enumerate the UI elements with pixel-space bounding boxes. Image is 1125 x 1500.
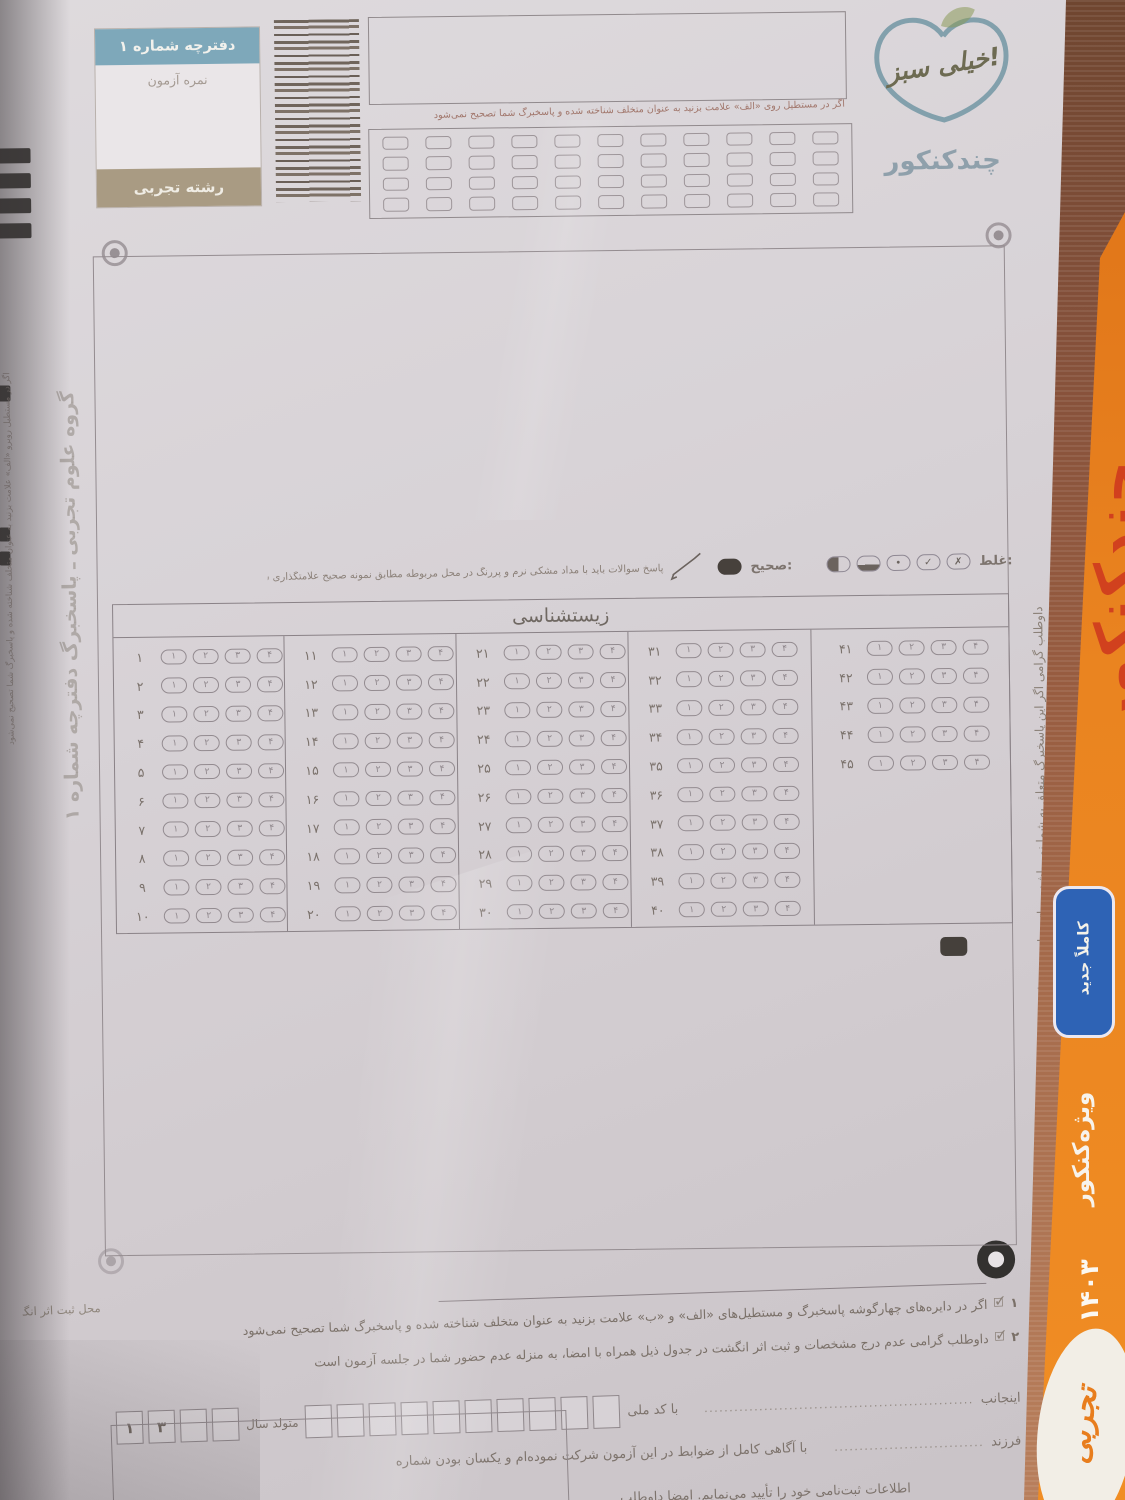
answer-bubble: ۴ <box>963 668 989 684</box>
answer-bubble: ۲ <box>365 790 391 806</box>
answer-bubble: ۲ <box>537 788 563 804</box>
answer-bubble: ۳ <box>743 901 769 917</box>
answer-row: ۲۲۱۲۳۴ <box>469 666 628 697</box>
answer-bubble: ۴ <box>428 674 454 690</box>
answer-bubble: ۳ <box>569 730 595 746</box>
answer-bubble: ۲ <box>538 817 564 833</box>
question-number: ۲۷ <box>471 818 499 833</box>
field-label: رشته تجربی <box>97 167 261 207</box>
sticker-field-text: تجربی <box>1058 1363 1107 1486</box>
answer-bubble: ۴ <box>257 705 283 721</box>
answer-bubble: ۱ <box>332 647 358 663</box>
answer-bubble: ۱ <box>162 764 188 780</box>
question-number: ۲ <box>126 678 154 693</box>
answer-column: ۲۱۱۲۳۴۲۲۱۲۳۴۲۳۱۲۳۴۲۴۱۲۳۴۲۵۱۲۳۴۲۶۱۲۳۴۲۷۱۲… <box>456 632 632 929</box>
answer-bubble: ۱ <box>677 729 703 745</box>
code-grid-cell <box>727 193 753 207</box>
answer-bubble: ۲ <box>536 644 562 660</box>
answer-bubble: ۴ <box>602 816 628 832</box>
code-grid-cell <box>512 196 538 210</box>
answer-bubble: ۱ <box>677 787 703 803</box>
question-number: ۱۶ <box>298 791 326 806</box>
answer-bubble: ۱ <box>506 846 532 862</box>
answer-bubble: ۲ <box>537 760 563 776</box>
question-number: ۳۵ <box>642 758 670 773</box>
answer-row: ۳۴۱۲۳۴ <box>642 721 812 752</box>
answer-bubble: ۲ <box>365 762 391 778</box>
code-grid-cell <box>555 175 581 189</box>
answer-bubble: ۴ <box>772 641 798 657</box>
answer-bubble: ۳ <box>569 788 595 804</box>
answer-bubble: ۲ <box>709 786 735 802</box>
question-number: ۲۵ <box>470 761 498 776</box>
question-number: ۳۰ <box>472 905 500 920</box>
answer-bubble: ۱ <box>161 649 187 665</box>
answer-bubble: ۲ <box>899 697 925 713</box>
answer-bubble: ۲ <box>193 649 219 665</box>
answer-bubble: ۴ <box>963 639 989 655</box>
answer-row: ۱۰۱۲۳۴ <box>129 900 287 931</box>
question-number: ۴۲ <box>832 670 860 685</box>
product-name: چندکنکور <box>852 145 1032 177</box>
answer-bubble: ۳ <box>570 874 596 890</box>
answer-bubble: ۱ <box>333 762 359 778</box>
answer-bubble: ۳ <box>225 677 251 693</box>
answer-bubble: ۳ <box>740 671 766 687</box>
answer-bubble: ۲ <box>539 903 565 919</box>
score-label: نمره آزمون <box>95 63 260 169</box>
answer-bubble: ۴ <box>258 792 284 808</box>
answer-column: ۴۱۱۲۳۴۴۲۱۲۳۴۴۳۱۲۳۴۴۴۱۲۳۴۴۵۱۲۳۴ <box>811 627 1014 924</box>
answer-bubble: ۴ <box>259 849 285 865</box>
answer-row: ۱۱۲۳۴ <box>125 641 283 672</box>
answer-bubble: ۳ <box>742 843 768 859</box>
wrong-sample-cross: ✗ <box>946 553 970 570</box>
answer-bubble: ۳ <box>568 702 594 718</box>
answer-bubble: ۲ <box>710 873 736 889</box>
answer-bubble: ۴ <box>428 646 454 662</box>
answer-row: ۳۱۲۳۴ <box>126 699 284 730</box>
answer-bubble: ۱ <box>506 875 532 891</box>
answer-bubble: ۲ <box>367 906 393 922</box>
name-dotted-line: ........................................… <box>685 1393 974 1416</box>
code-grid-cell <box>469 196 495 210</box>
answer-bubble: ۴ <box>602 874 628 890</box>
answer-bubble: ۲ <box>365 733 391 749</box>
answer-bubble: ۱ <box>867 640 893 656</box>
wrong-sample-dot: • <box>886 555 910 572</box>
code-grid-cell <box>511 134 537 148</box>
answer-bubble: ۴ <box>429 732 455 748</box>
code-grid-cell <box>383 157 409 171</box>
answer-bubble: ۳ <box>570 817 596 833</box>
answer-bubble: ۳ <box>932 755 958 771</box>
answer-bubble: ۱ <box>505 789 531 805</box>
question-number: ۷ <box>128 822 156 837</box>
answer-bubble: ۱ <box>504 702 530 718</box>
answer-bubble: ۲ <box>194 793 220 809</box>
answer-bubble: ۴ <box>773 728 799 744</box>
wrong-sample-bubbles: •✓✗ <box>826 553 970 572</box>
answer-bubble: ۳ <box>227 879 253 895</box>
answer-bubble: ۱ <box>334 820 360 836</box>
question-number: ۶ <box>127 794 155 809</box>
question-number: ۳ <box>126 707 154 722</box>
footer-rules: ۱ 🗹 اگر در دایره‌های چهارگوشه پاسخبرگ و … <box>108 1286 1020 1386</box>
answer-bubble: ۲ <box>366 877 392 893</box>
answer-bubble: ۴ <box>963 697 989 713</box>
question-number: ۲۹ <box>471 876 499 891</box>
answer-bubble: ۴ <box>601 788 627 804</box>
answer-bubble: ۳ <box>570 846 596 862</box>
answer-bubble: ۲ <box>536 673 562 689</box>
answer-bubble: ۴ <box>430 876 456 892</box>
answer-bubble: ۳ <box>931 668 957 684</box>
answer-bubble: ۱ <box>868 727 894 743</box>
answer-row: ۲۸۱۲۳۴ <box>471 838 630 869</box>
answer-row: ۱۸۱۲۳۴ <box>299 841 458 872</box>
answer-bubble: ۳ <box>225 706 251 722</box>
question-number: ۴۵ <box>833 756 861 771</box>
answer-row: ۲۱۲۳۴ <box>126 670 284 701</box>
answer-bubble: ۲ <box>194 735 220 751</box>
code-grid-cell <box>812 172 838 186</box>
photo-of-answer-sheet: دفترچه شماره ۱ نمره آزمون رشته تجربی اگر… <box>0 0 1125 1500</box>
answer-bubble: ۱ <box>867 669 893 685</box>
question-number: ۱۹ <box>299 878 327 893</box>
code-grid-cell <box>598 154 624 168</box>
question-number: ۳۷ <box>643 816 671 831</box>
answer-bubble: ۲ <box>195 879 221 895</box>
answer-bubble: ۳ <box>225 648 251 664</box>
answer-row: ۳۹۱۲۳۴ <box>643 865 813 896</box>
wrong-sample-dash <box>856 555 880 572</box>
answer-row: ۲۱۱۲۳۴ <box>468 637 627 668</box>
answer-bubble: ۱ <box>162 793 188 809</box>
student-code-grid <box>368 123 853 219</box>
answer-bubble: ۲ <box>538 846 564 862</box>
code-grid-cell <box>555 154 581 168</box>
answer-bubble: ۴ <box>964 754 990 770</box>
answer-bubble: ۱ <box>676 671 702 687</box>
answer-bubble: ۱ <box>678 844 704 860</box>
code-grid-cell <box>469 155 495 169</box>
code-grid-cell <box>684 173 710 187</box>
answer-column: ۱۱۱۲۳۴۱۲۱۲۳۴۱۳۱۲۳۴۱۴۱۲۳۴۱۵۱۲۳۴۱۶۱۲۳۴۱۷۱۲… <box>284 634 460 931</box>
answer-bubble: ۳ <box>396 675 422 691</box>
answer-bubble: ۴ <box>964 726 990 742</box>
answer-bubble: ۲ <box>708 700 734 716</box>
answer-row: ۳۶۱۲۳۴ <box>642 779 812 810</box>
answer-bubble: ۱ <box>504 645 530 661</box>
answer-bubble: ۴ <box>772 699 798 715</box>
answer-bubble: ۴ <box>601 730 627 746</box>
answer-bubble: ۳ <box>396 704 422 720</box>
answer-bubble: ۳ <box>568 673 594 689</box>
answer-bubble: ۱ <box>868 755 894 771</box>
answer-row: ۳۳۱۲۳۴ <box>641 692 811 723</box>
question-number: ۱۳ <box>297 705 325 720</box>
question-number: ۲۱ <box>469 645 497 660</box>
answer-bubble: ۴ <box>774 814 800 830</box>
question-number: ۱۲ <box>297 676 325 691</box>
answer-bubble: ۲ <box>711 901 737 917</box>
booklet-corner-label: دفترچه شماره ۱ نمره آزمون رشته تجربی <box>94 26 262 208</box>
answer-row: ۱۱۱۲۳۴ <box>296 639 455 670</box>
question-number: ۳۱ <box>641 643 669 658</box>
pencil-icon <box>668 550 709 585</box>
answer-bubble: ۴ <box>258 763 284 779</box>
i-label: اینجانب <box>981 1391 1021 1407</box>
question-number: ۲۸ <box>471 847 499 862</box>
answer-bubble: ۳ <box>398 819 424 835</box>
answer-bubble: ۳ <box>226 735 252 751</box>
booklet-number-label: دفترچه شماره ۱ <box>95 27 259 65</box>
answer-bubble: ۲ <box>708 671 734 687</box>
code-grid-cell <box>384 198 410 212</box>
code-grid-cell <box>641 194 667 208</box>
answer-row: ۴۴۱۲۳۴ <box>832 719 1011 750</box>
answer-bubble: ۱ <box>335 906 361 922</box>
answer-bubble: ۲ <box>900 726 926 742</box>
question-number: ۲۰ <box>300 907 328 922</box>
answer-bubble: ۱ <box>162 735 188 751</box>
answer-row: ۷۱۲۳۴ <box>128 814 286 845</box>
answer-bubble: ۲ <box>710 815 736 831</box>
question-number: ۳۴ <box>642 730 670 745</box>
wrong-sample-half <box>826 556 850 573</box>
answer-bubble: ۴ <box>773 757 799 773</box>
code-grid-cell <box>684 194 710 208</box>
answer-bubble: ۲ <box>193 677 219 693</box>
answer-row: ۴۵۱۲۳۴ <box>833 747 1012 778</box>
checkbox-icon: 🗹 <box>994 1327 1005 1348</box>
answer-bubble: ۱ <box>679 902 705 918</box>
spine-year: ۱۴۰۳ <box>1075 1246 1105 1336</box>
code-grid-cell <box>640 133 666 147</box>
answer-row: ۱۷۱۲۳۴ <box>299 812 458 843</box>
answer-bubble: ۴ <box>257 648 283 664</box>
answer-bubble: ۴ <box>429 790 455 806</box>
answer-bubble: ۱ <box>505 760 531 776</box>
spine-special-text: ویژه‌کنکور <box>1069 1059 1095 1239</box>
answer-bubble: ۳ <box>398 876 424 892</box>
signature-box <box>111 1410 572 1500</box>
code-grid-cell <box>426 136 452 150</box>
answer-bubble: ۳ <box>226 763 252 779</box>
answer-bubble: ۲ <box>537 731 563 747</box>
answer-table: زیستشناسی ۱۱۲۳۴۲۱۲۳۴۳۱۲۳۴۴۱۲۳۴۵۱۲۳۴۶۱۲۳۴… <box>112 593 1013 934</box>
rule-number: ۲ <box>1011 1329 1019 1344</box>
answer-row: ۳۵۱۲۳۴ <box>642 750 812 781</box>
code-grid-cell <box>812 151 838 165</box>
answer-bubble: ۲ <box>195 821 221 837</box>
answer-bubble: ۴ <box>257 677 283 693</box>
name-box <box>368 11 847 105</box>
code-grid-cell <box>512 175 538 189</box>
wrong-label: غلط: <box>979 553 1013 569</box>
answer-row: ۶۱۲۳۴ <box>127 785 285 816</box>
answer-row: ۳۷۱۲۳۴ <box>643 807 813 838</box>
answer-row: ۲۳۱۲۳۴ <box>469 694 628 725</box>
answer-bubble: ۳ <box>741 728 767 744</box>
answer-bubble: ۱ <box>333 791 359 807</box>
answer-grid: ۱۱۲۳۴۲۱۲۳۴۳۱۲۳۴۴۱۲۳۴۵۱۲۳۴۶۱۲۳۴۷۱۲۳۴۸۱۲۳۴… <box>113 627 1012 933</box>
answer-bubble: ۲ <box>194 764 220 780</box>
answer-bubble: ۴ <box>600 672 626 688</box>
question-number: ۴ <box>127 736 155 751</box>
question-number: ۳۹ <box>643 874 671 889</box>
wrong-sample-check: ✓ <box>916 554 940 571</box>
answer-bubble: ۳ <box>228 907 254 923</box>
answer-bubble: ۴ <box>773 785 799 801</box>
answer-bubble: ۲ <box>710 844 736 860</box>
answer-row: ۲۷۱۲۳۴ <box>471 810 630 841</box>
answer-bubble: ۲ <box>364 675 390 691</box>
answer-bubble: ۳ <box>569 759 595 775</box>
answer-bubble: ۱ <box>867 698 893 714</box>
answer-bubble: ۳ <box>740 642 766 658</box>
code-grid-cell <box>383 136 409 150</box>
question-number: ۲۶ <box>470 789 498 804</box>
correct-label: صحیح: <box>750 558 792 574</box>
code-grid-cell <box>597 133 623 147</box>
answer-bubble: ۴ <box>601 759 627 775</box>
code-grid-cell <box>383 177 409 191</box>
answer-bubble: ۲ <box>708 642 734 658</box>
answer-bubble: ۲ <box>366 819 392 835</box>
code-grid-cell <box>555 195 581 209</box>
answer-bubble: ۳ <box>398 848 424 864</box>
code-grid-cell <box>554 134 580 148</box>
answer-bubble: ۱ <box>161 707 187 723</box>
answer-bubble: ۴ <box>772 670 798 686</box>
answer-bubble: ۴ <box>603 903 629 919</box>
answer-bubble: ۳ <box>397 790 423 806</box>
answer-row: ۴۱۱۲۳۴ <box>831 632 1010 663</box>
answer-bubble: ۳ <box>932 726 958 742</box>
answer-bubble: ۱ <box>507 904 533 920</box>
answer-bubble: ۱ <box>506 818 532 834</box>
answer-bubble: ۳ <box>226 792 252 808</box>
code-grid-cell <box>426 197 452 211</box>
answer-bubble: ۴ <box>600 644 626 660</box>
question-number: ۱۸ <box>299 849 327 864</box>
national-id-box <box>593 1395 621 1429</box>
filled-bubble-sample <box>940 937 967 956</box>
answer-bubble: ۱ <box>678 873 704 889</box>
code-grid-cell <box>726 132 752 146</box>
code-grid-cell <box>770 193 796 207</box>
question-number: ۱۱ <box>297 647 325 662</box>
answer-row: ۱۶۱۲۳۴ <box>298 783 457 814</box>
code-grid-cell <box>727 173 753 187</box>
question-number: ۱۷ <box>299 820 327 835</box>
answer-bubble: ۱ <box>163 850 189 866</box>
answer-bubble: ۴ <box>602 845 628 861</box>
answer-bubble: ۱ <box>505 731 531 747</box>
code-grid-cell <box>769 172 795 186</box>
answer-row: ۲۶۱۲۳۴ <box>470 781 629 812</box>
answer-row: ۳۸۱۲۳۴ <box>643 836 813 867</box>
answer-bubble: ۱ <box>334 848 360 864</box>
answer-row: ۱۴۱۲۳۴ <box>298 725 457 756</box>
timing-mark <box>0 148 31 163</box>
answer-bubble: ۳ <box>397 732 423 748</box>
answer-bubble: ۳ <box>397 761 423 777</box>
answer-bubble: ۲ <box>899 640 925 656</box>
answer-bubble: ۲ <box>364 646 390 662</box>
answer-row: ۳۱۱۲۳۴ <box>640 635 810 666</box>
badge-text: کاملاً جدید <box>1075 893 1094 1023</box>
answer-bubble: ۴ <box>429 761 455 777</box>
code-grid-cell <box>813 192 839 206</box>
national-id-label: با کد ملی <box>627 1402 678 1419</box>
code-grid-cell <box>426 156 452 170</box>
answer-row: ۳۲۱۲۳۴ <box>641 663 811 694</box>
question-number: ۱۴ <box>298 734 326 749</box>
question-number: ۹ <box>128 880 156 895</box>
answer-row: ۳۰۱۲۳۴ <box>472 896 631 927</box>
answer-bubble: ۱ <box>677 758 703 774</box>
question-number: ۸ <box>128 851 156 866</box>
timing-mark <box>0 173 31 188</box>
answer-bubble: ۳ <box>741 757 767 773</box>
answer-row: ۲۰۱۲۳۴ <box>300 898 459 929</box>
question-number: ۳۲ <box>641 672 669 687</box>
left-edge-note: اگر در مستطیل روبرو «الف» علامت بزنید به… <box>2 372 16 732</box>
code-grid-cell <box>726 152 752 166</box>
answer-bubble: ۳ <box>396 646 422 662</box>
answer-bubble: ۴ <box>259 878 285 894</box>
answer-bubble: ۳ <box>227 850 253 866</box>
barcode <box>274 19 361 202</box>
answer-bubble: ۳ <box>742 815 768 831</box>
code-grid-cell <box>598 174 624 188</box>
answer-bubble: ۲ <box>538 875 564 891</box>
marking-instruction: پاسخ سوالات باید با مداد مشکی نرم و پررن… <box>268 563 664 583</box>
answer-bubble: ۳ <box>742 872 768 888</box>
answer-bubble: ۱ <box>332 676 358 692</box>
answer-bubble: ۲ <box>536 702 562 718</box>
answer-row: ۱۲۱۲۳۴ <box>297 668 456 699</box>
question-number: ۱۵ <box>298 763 326 778</box>
question-number: ۲۴ <box>470 732 498 747</box>
code-grid-cell <box>598 195 624 209</box>
question-number: ۱ <box>126 650 154 665</box>
answer-bubble: ۱ <box>334 877 360 893</box>
answer-bubble: ۴ <box>430 818 456 834</box>
answer-bubble: ۱ <box>676 700 702 716</box>
question-number: ۴۳ <box>832 699 860 714</box>
answer-row: ۲۴۱۲۳۴ <box>470 723 629 754</box>
code-grid-cell <box>769 131 795 145</box>
answer-bubble: ۳ <box>741 786 767 802</box>
publisher-logo: خیلی سبز! <box>855 1 1032 143</box>
answer-bubble: ۱ <box>332 704 358 720</box>
answer-bubble: ۳ <box>931 697 957 713</box>
answer-bubble: ۴ <box>428 703 454 719</box>
answer-row: ۴۰۱۲۳۴ <box>644 894 814 925</box>
answer-bubble: ۱ <box>676 643 702 659</box>
question-number: ۳۸ <box>643 845 671 860</box>
answer-bubble: ۲ <box>196 908 222 924</box>
question-number: ۴۴ <box>833 727 861 742</box>
answer-bubble: ۳ <box>399 905 425 921</box>
answer-row: ۲۵۱۲۳۴ <box>470 752 629 783</box>
code-grid-cell <box>683 153 709 167</box>
question-number: ۳۳ <box>641 701 669 716</box>
